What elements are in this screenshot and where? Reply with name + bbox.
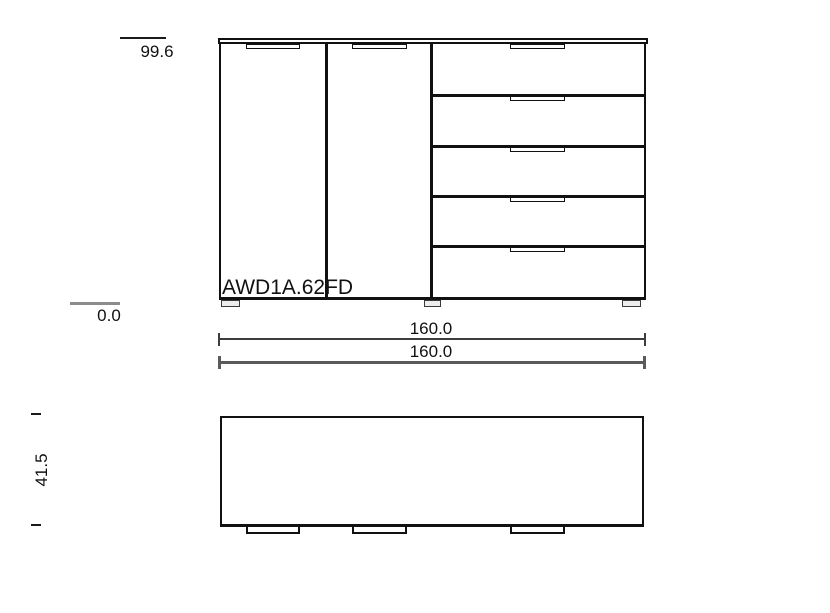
model-label: AWD1A.62FD xyxy=(222,276,353,300)
height-top-label: 99.6 xyxy=(133,43,181,61)
height-baseline-tick xyxy=(70,302,120,305)
depth-label: 41.5 xyxy=(33,444,51,496)
furniture-technical-drawing: AWD1A.62FD 99.6 0.0 160.0 160.0 41.5 xyxy=(0,0,830,613)
door-divider-line xyxy=(325,44,328,297)
dimension-end-tick xyxy=(643,356,646,369)
drawer-stack xyxy=(433,44,643,297)
height-top-tick xyxy=(120,37,166,39)
dimension-end-tick xyxy=(644,333,646,346)
drawer-handle xyxy=(510,197,565,202)
cabinet-foot xyxy=(424,300,441,307)
door-drawer-divider-line xyxy=(430,44,433,297)
dimension-end-tick xyxy=(218,356,221,369)
drawer-handle xyxy=(510,96,565,101)
width-primary-label: 160.0 xyxy=(380,320,482,338)
width-primary-dimension-line xyxy=(218,338,646,340)
cabinet-foot xyxy=(622,300,641,307)
drawer-handle xyxy=(510,44,565,49)
right-door-handle xyxy=(352,44,407,49)
height-baseline-label: 0.0 xyxy=(85,307,133,325)
drawer-handle xyxy=(510,147,565,152)
width-secondary-dimension-line xyxy=(218,361,646,364)
depth-bottom-tick xyxy=(31,524,41,526)
left-door-handle xyxy=(246,44,300,49)
width-secondary-label: 160.0 xyxy=(380,343,482,361)
left-door-panel xyxy=(221,44,325,297)
drawer-handle xyxy=(510,247,565,252)
right-door-panel xyxy=(328,44,430,297)
cabinet-foot xyxy=(221,300,240,307)
depth-top-tick xyxy=(31,413,41,415)
dimension-end-tick xyxy=(218,333,220,346)
plan-outline xyxy=(220,416,644,527)
